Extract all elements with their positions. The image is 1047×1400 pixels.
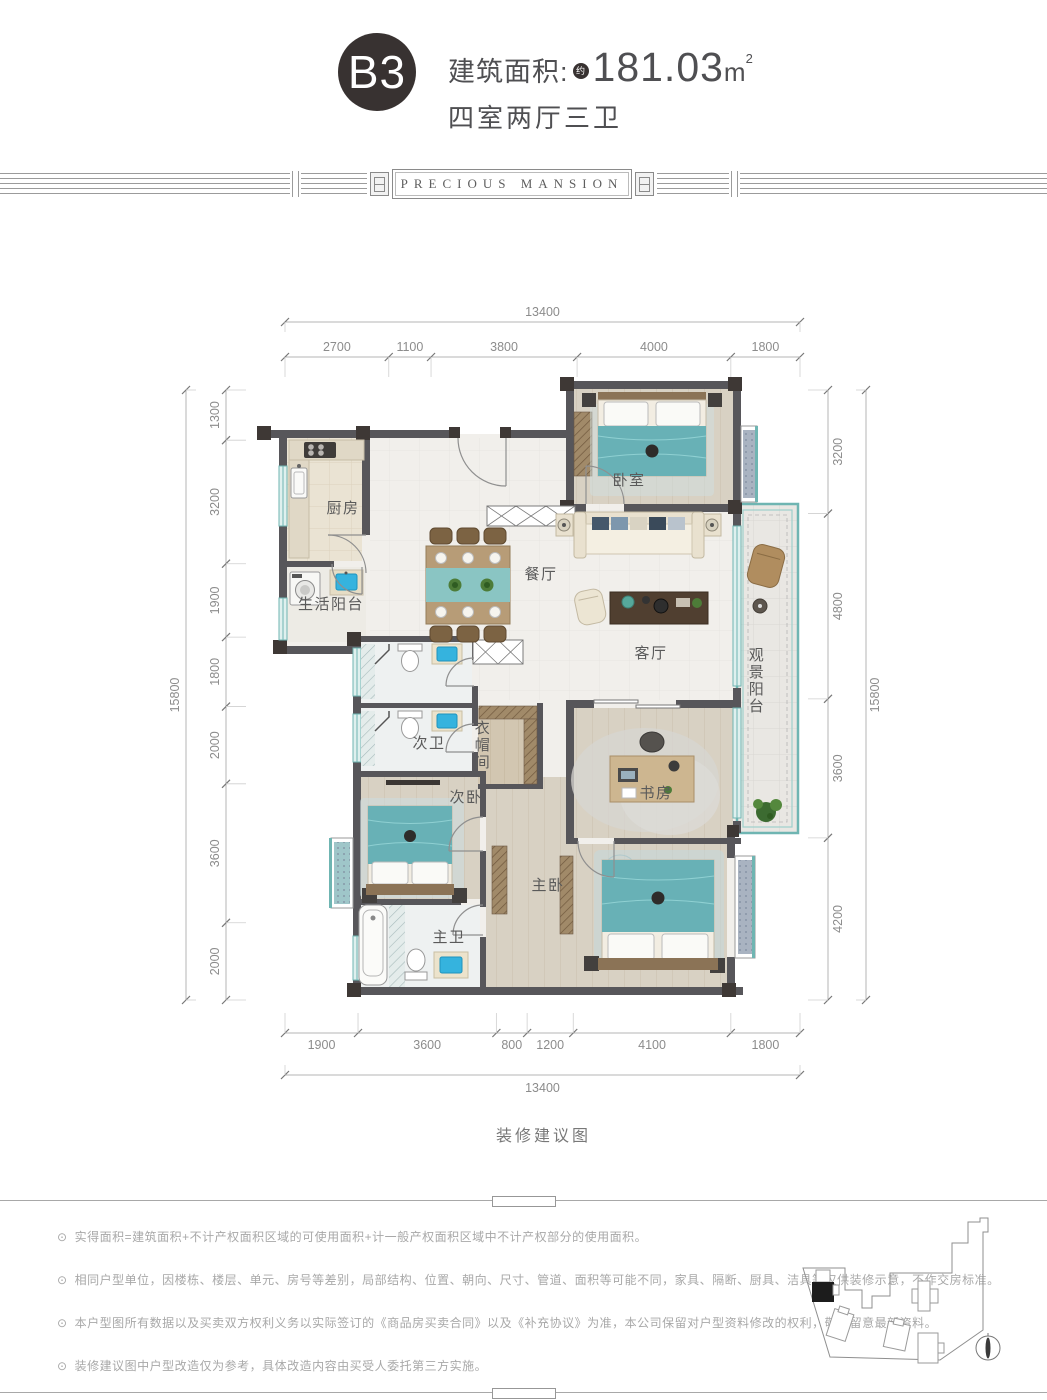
building-outline xyxy=(826,1281,944,1363)
nightstand-icon xyxy=(708,393,722,407)
window-icon xyxy=(279,466,287,526)
sink-icon xyxy=(437,647,457,661)
dimension-row: 15800 xyxy=(168,386,196,1004)
bay-window-icon xyxy=(329,838,353,908)
room-label-dining: 餐厅 xyxy=(524,566,557,583)
divider-ornament xyxy=(492,1196,556,1207)
header-text: 建筑面积: 约 181.03 m2 四室两厅三卫 xyxy=(448,44,753,135)
note-bullet-icon: ⊙ xyxy=(57,1359,68,1373)
bay-window-icon xyxy=(735,856,755,958)
dim-label: 1900 xyxy=(208,586,222,614)
window-icon xyxy=(733,526,741,686)
site-map xyxy=(792,1205,1044,1390)
area-unit-sup: 2 xyxy=(746,51,753,66)
sofa-icon xyxy=(574,512,704,558)
window-icon xyxy=(353,648,361,696)
nightstand-icon xyxy=(452,888,467,903)
dim-label: 15800 xyxy=(868,678,882,713)
plan-caption: 装修建议图 xyxy=(0,1122,1047,1146)
note-bullet-icon: ⊙ xyxy=(57,1230,68,1244)
dimension-row: 1300320019001800200036002000 xyxy=(208,386,246,1004)
desk-chair-icon xyxy=(640,732,664,752)
dim-label: 13400 xyxy=(525,1081,560,1094)
hall-cabinet xyxy=(473,640,523,664)
dim-label: 1800 xyxy=(752,1038,780,1052)
divider-line xyxy=(0,1392,1047,1393)
bay-window-icon xyxy=(741,426,758,502)
dim-label: 1800 xyxy=(208,658,222,686)
dim-label: 1300 xyxy=(208,401,222,429)
room-label-second-bedroom: 次卧 xyxy=(449,789,482,806)
floorplan-page: B3 建筑面积: 约 181.03 m2 四室两厅三卫 PRECIOUS MAN… xyxy=(0,0,1047,1400)
dim-label: 3600 xyxy=(831,754,845,782)
divider-ornament xyxy=(492,1388,556,1399)
note-text: 实得面积=建筑面积+不计产权面积区域的可使用面积+计一般产权面积区域中不计产权部… xyxy=(75,1230,648,1244)
area-unit: m2 xyxy=(724,51,753,88)
area-line: 建筑面积: 约 181.03 m2 xyxy=(448,44,753,94)
dim-label: 13400 xyxy=(525,305,560,319)
window-icon xyxy=(353,714,361,762)
brand-band: PRECIOUS MANSION xyxy=(0,168,1047,200)
bedroom-furniture xyxy=(574,392,722,496)
unit-label: B3 xyxy=(348,45,406,99)
room-label-master-bath: 主卫 xyxy=(432,929,465,946)
dim-label: 2000 xyxy=(208,731,222,759)
wardrobe-icon xyxy=(524,719,537,784)
dim-label: 1100 xyxy=(396,340,423,354)
dim-label: 4100 xyxy=(638,1038,666,1052)
wardrobe-icon xyxy=(560,856,573,934)
room-label-second-bath: 次卫 xyxy=(412,735,445,752)
floorplan-drawing: 厨房生活阳台餐厅卧室客厅观景阳台次卫衣帽间次卧书房主卧主卫 1340027001… xyxy=(150,272,895,1094)
sliding-door-icon xyxy=(594,700,638,703)
tv-console-icon xyxy=(610,592,708,624)
dim-label: 3200 xyxy=(208,488,222,516)
dimension-row: 27001100380040001800 xyxy=(281,340,804,377)
room-label-cloakroom: 衣帽间 xyxy=(475,720,492,771)
toilet-icon xyxy=(398,644,422,651)
sink-icon xyxy=(440,957,462,973)
brand-text: PRECIOUS MANSION xyxy=(401,176,624,192)
window-icon xyxy=(733,708,741,818)
dimension-row: 15800 xyxy=(856,386,882,1004)
toilet-icon xyxy=(398,711,422,718)
room-label-service-balcony: 生活阳台 xyxy=(298,596,364,613)
band-divider xyxy=(731,171,738,197)
dim-label: 3600 xyxy=(208,839,222,867)
band-divider xyxy=(292,171,299,197)
dim-label: 3600 xyxy=(413,1038,441,1052)
seal-icon xyxy=(370,172,389,196)
window-icon xyxy=(279,598,287,640)
wardrobe-icon xyxy=(479,706,537,719)
dim-label: 4200 xyxy=(831,905,845,933)
sliding-door-icon xyxy=(636,705,680,708)
band-lines xyxy=(657,173,729,195)
band-lines xyxy=(0,173,290,195)
dim-label: 1900 xyxy=(308,1038,336,1052)
dim-label: 1200 xyxy=(536,1038,564,1052)
divider-line xyxy=(0,1200,1047,1201)
note-bullet-icon: ⊙ xyxy=(57,1273,68,1287)
dim-label: 3200 xyxy=(831,438,845,466)
dimension-row: 3200480036004200 xyxy=(808,386,845,1004)
dim-label: 1800 xyxy=(752,340,780,354)
sink-icon xyxy=(437,714,457,728)
bed-icon xyxy=(366,806,454,895)
dim-label: 4000 xyxy=(640,340,668,354)
bed-icon xyxy=(598,860,718,970)
unit-badge: B3 xyxy=(338,33,416,111)
tv-icon xyxy=(386,780,440,785)
layout-text: 四室两厅三卫 xyxy=(448,98,753,135)
band-lines xyxy=(301,173,367,195)
approx-circle-icon: 约 xyxy=(573,63,589,79)
band-lines xyxy=(740,173,1047,195)
dim-label: 2700 xyxy=(323,340,351,354)
dimension-row: 13400 xyxy=(281,1065,804,1094)
brand-panel: PRECIOUS MANSION xyxy=(392,169,632,199)
room-label-view-balcony: 观景阳台 xyxy=(749,647,766,715)
nightstand-icon xyxy=(582,393,596,407)
room-label-master-bedroom: 主卧 xyxy=(531,877,564,894)
wardrobe-icon xyxy=(492,846,507,914)
area-value: 181.03 xyxy=(593,44,724,91)
dim-label: 2000 xyxy=(208,947,222,975)
note-bullet-icon: ⊙ xyxy=(57,1316,68,1330)
nightstand-icon xyxy=(584,956,599,971)
dim-label: 15800 xyxy=(168,678,182,713)
room-label-study: 书房 xyxy=(639,785,672,802)
toilet-icon xyxy=(407,949,425,971)
dimension-row: 13400 xyxy=(281,305,804,332)
shower-icon xyxy=(361,644,375,699)
building-highlighted xyxy=(812,1270,839,1302)
dim-label: 3800 xyxy=(490,340,518,354)
dim-label: 4800 xyxy=(831,592,845,620)
shower-icon xyxy=(361,711,375,766)
dimension-row: 19003600800120041001800 xyxy=(281,1013,804,1052)
dim-label: 800 xyxy=(501,1038,522,1052)
note-text: 装修建议图中户型改造仅为参考，具体改造内容由买受人委托第三方实施。 xyxy=(75,1359,488,1373)
laundry-sink-icon xyxy=(336,574,357,590)
seal-icon xyxy=(635,172,654,196)
room-label-kitchen: 厨房 xyxy=(326,500,359,517)
compass-icon xyxy=(976,1333,1000,1360)
area-label: 建筑面积: xyxy=(448,50,569,89)
room-label-bedroom: 卧室 xyxy=(612,472,645,489)
room-label-living: 客厅 xyxy=(634,645,667,662)
